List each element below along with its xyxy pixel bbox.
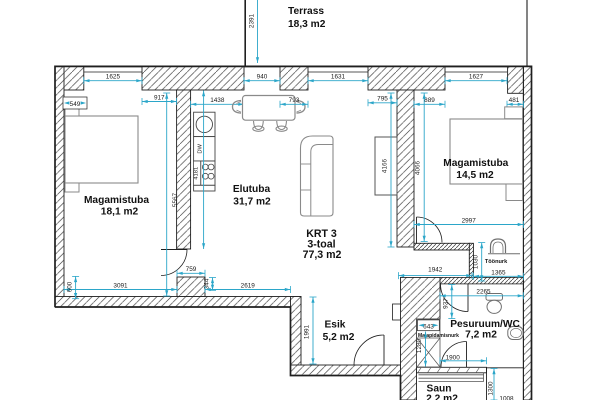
svg-text:Esik: Esik: [325, 320, 346, 331]
svg-text:940: 940: [257, 74, 268, 81]
svg-text:18,3 m2: 18,3 m2: [288, 19, 326, 30]
svg-text:643: 643: [423, 323, 434, 330]
svg-text:3091: 3091: [113, 282, 128, 289]
svg-text:DW: DW: [198, 143, 204, 153]
svg-text:2619: 2619: [241, 282, 256, 289]
svg-text:2997: 2997: [462, 217, 477, 224]
svg-text:344: 344: [204, 278, 211, 289]
svg-text:1627: 1627: [469, 74, 484, 81]
svg-text:Elutuba: Elutuba: [233, 184, 271, 195]
svg-text:1438: 1438: [210, 97, 225, 104]
svg-text:917: 917: [154, 94, 165, 101]
svg-text:Magamistuba: Magamistuba: [443, 158, 508, 169]
svg-text:1900: 1900: [446, 354, 461, 361]
svg-text:600: 600: [67, 281, 74, 292]
svg-text:18,1 m2: 18,1 m2: [101, 207, 139, 218]
svg-text:793: 793: [289, 97, 300, 104]
svg-text:759: 759: [186, 266, 197, 273]
svg-text:1365: 1365: [491, 270, 506, 277]
svg-text:77,3 m2: 77,3 m2: [303, 249, 342, 261]
svg-text:1280: 1280: [416, 338, 423, 353]
svg-text:1030: 1030: [473, 254, 480, 269]
svg-text:5,2 m2: 5,2 m2: [323, 332, 355, 343]
svg-text:Töönurk: Töönurk: [485, 259, 508, 265]
svg-text:4066: 4066: [415, 160, 422, 175]
svg-text:5567: 5567: [172, 192, 179, 207]
svg-text:1631: 1631: [331, 74, 346, 81]
svg-text:Pesuruum/WC: Pesuruum/WC: [450, 319, 520, 330]
svg-text:1991: 1991: [304, 324, 311, 339]
svg-text:14,5 m2: 14,5 m2: [456, 170, 494, 181]
svg-text:1300: 1300: [488, 381, 495, 396]
svg-text:7,2 m2: 7,2 m2: [465, 330, 497, 341]
svg-text:2,2 m2: 2,2 m2: [426, 394, 458, 400]
svg-text:Magamistuba: Magamistuba: [84, 195, 149, 206]
svg-text:795: 795: [377, 96, 388, 103]
svg-text:549: 549: [70, 101, 81, 108]
svg-text:4181: 4181: [193, 167, 199, 180]
svg-text:31,7 m2: 31,7 m2: [233, 197, 271, 208]
svg-text:889: 889: [424, 97, 435, 104]
svg-text:1625: 1625: [106, 74, 121, 81]
svg-text:2265: 2265: [476, 289, 491, 296]
svg-text:1008: 1008: [499, 396, 514, 400]
svg-text:Terrass: Terrass: [288, 6, 324, 17]
svg-text:481: 481: [509, 97, 520, 104]
svg-text:2391: 2391: [249, 13, 256, 28]
svg-text:937: 937: [442, 298, 449, 309]
svg-text:Majapidamisnurk: Majapidamisnurk: [418, 333, 459, 339]
svg-text:1942: 1942: [428, 267, 443, 274]
svg-text:4166: 4166: [382, 158, 389, 173]
